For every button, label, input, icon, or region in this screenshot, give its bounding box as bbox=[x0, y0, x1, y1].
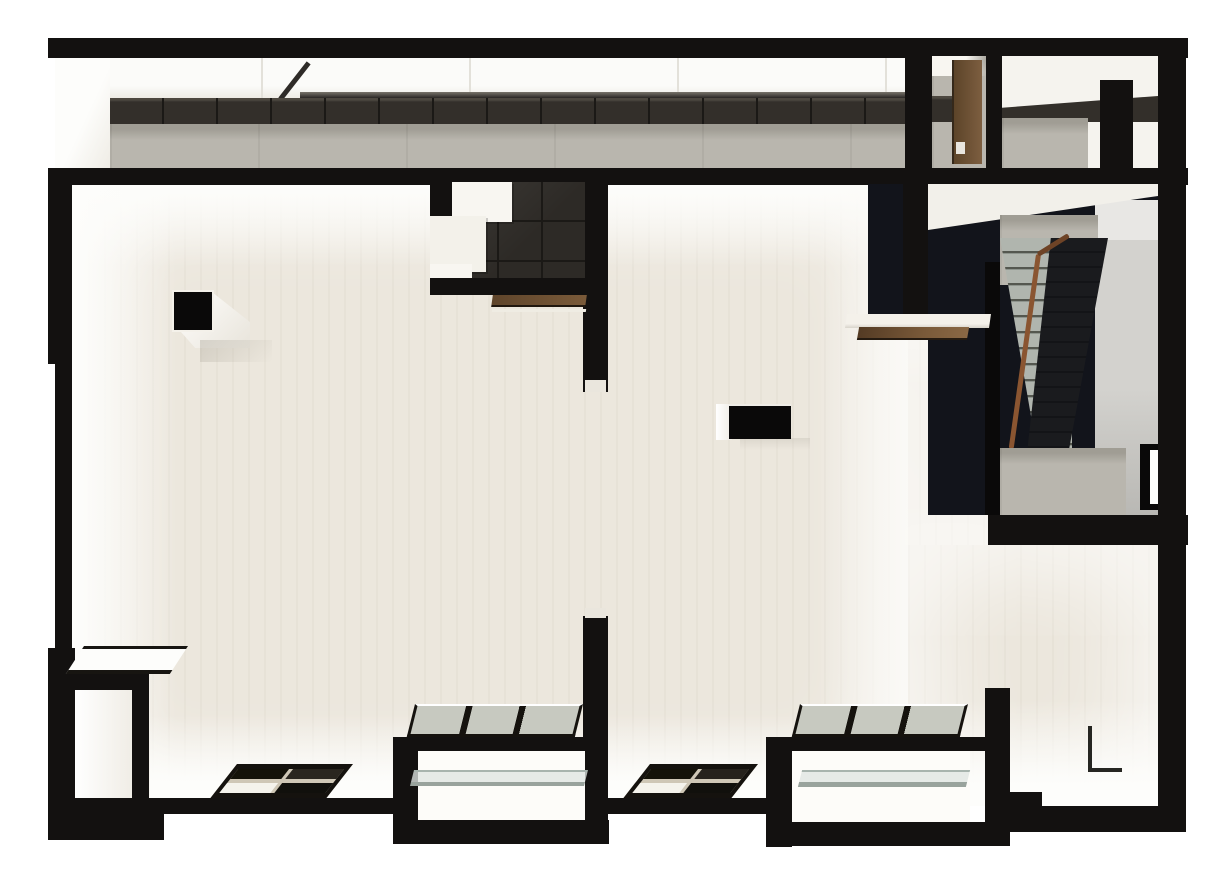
alcove-group bbox=[0, 0, 1212, 879]
entry-room-b-floor bbox=[1002, 118, 1088, 168]
alcove-inner-wall bbox=[132, 674, 149, 816]
stair-door-leaf-wood bbox=[857, 327, 969, 340]
stair-gray-wall bbox=[1095, 200, 1158, 515]
wall-face-bottom bbox=[150, 715, 908, 805]
floor-track-line-vert bbox=[1088, 726, 1092, 772]
entry-room-a-floor bbox=[932, 56, 986, 168]
balcony1-bottom-wall bbox=[393, 820, 609, 844]
balcony2-left-wall bbox=[766, 737, 792, 847]
wall-face-left bbox=[72, 185, 177, 805]
stair-upper-landing bbox=[1000, 215, 1098, 285]
balcony1-floor bbox=[418, 751, 585, 820]
stair-window-slot bbox=[1150, 450, 1166, 504]
entry-rooms-group bbox=[0, 0, 1212, 879]
bottom-wall-left bbox=[160, 798, 402, 814]
window-pane bbox=[219, 783, 278, 793]
stair-door-wall-cap bbox=[845, 314, 991, 328]
entry-room-b bbox=[1002, 56, 1158, 168]
vestibule-corner-wall bbox=[430, 168, 457, 218]
entry-room-a-tiles bbox=[932, 96, 952, 122]
vestibule-step-2 bbox=[430, 216, 486, 272]
window-pane bbox=[274, 783, 333, 793]
vestibule-bottom-wall bbox=[430, 278, 608, 295]
stair-lower-landing bbox=[1000, 448, 1126, 515]
north-main-wall bbox=[48, 168, 1188, 185]
floor-right-lower bbox=[908, 545, 1158, 806]
entry-room-b-inner-wall bbox=[1100, 80, 1133, 168]
balcony1-left-wall bbox=[393, 737, 418, 844]
stair-flight-dark bbox=[1020, 238, 1108, 453]
gallery-skylight-strip bbox=[55, 58, 985, 98]
vestibule-floor-tiles bbox=[455, 182, 585, 294]
balcony2-step-wall bbox=[1010, 792, 1042, 818]
window-pane bbox=[694, 769, 749, 779]
window-pane bbox=[230, 769, 289, 779]
balcony2-wall-band bbox=[770, 737, 992, 751]
alcove-bottom-wall bbox=[48, 798, 164, 840]
main-floor-group bbox=[0, 0, 1212, 879]
gallery-top-wall bbox=[48, 38, 1188, 58]
bottom-wall-mid bbox=[605, 798, 791, 814]
stair-handrail-top bbox=[1037, 233, 1070, 256]
left-wall-lower bbox=[55, 364, 72, 654]
floor-plan-render bbox=[0, 0, 1212, 879]
floor-right-mid bbox=[903, 318, 990, 545]
alcove-bench-table bbox=[66, 646, 188, 674]
entry-room-a-ceiling bbox=[932, 56, 986, 76]
balcony2-glazing-3pane bbox=[792, 704, 968, 737]
entry-divider-b bbox=[986, 38, 1002, 184]
alcove-interior-face bbox=[75, 690, 132, 810]
stair-entry-wall bbox=[903, 184, 928, 318]
stair-hall-void bbox=[928, 184, 1158, 515]
stair-flight-concrete bbox=[1000, 238, 1072, 453]
balcony1-glazing-3pane bbox=[407, 704, 583, 737]
tile-wall-top-edge bbox=[300, 92, 985, 98]
vestibule-door-threshold bbox=[492, 309, 586, 312]
wall-face-right bbox=[818, 185, 908, 805]
column-square-shadow bbox=[200, 340, 272, 362]
skylight-corner-seam bbox=[278, 61, 310, 100]
window-pane bbox=[683, 783, 738, 793]
wall-face-bottom-right bbox=[908, 700, 1158, 806]
window-grid-mid bbox=[623, 764, 758, 798]
walls-group bbox=[0, 0, 1212, 879]
column-square bbox=[172, 290, 214, 332]
entry-door-a-wood bbox=[952, 60, 982, 164]
vestibule-group bbox=[0, 0, 1212, 879]
stair-doorway-dark bbox=[868, 184, 903, 318]
stair-window-frame bbox=[1140, 444, 1174, 510]
alcove-left-wall bbox=[48, 648, 75, 840]
window-pane bbox=[643, 769, 698, 779]
balcony2-floor bbox=[792, 751, 970, 822]
column-rect bbox=[729, 404, 791, 439]
mid-wall-lower-cap bbox=[585, 608, 606, 618]
alcove-top-wall bbox=[60, 674, 148, 690]
mid-wall-upper-cap bbox=[585, 380, 606, 392]
balcony2-bottom-wall bbox=[766, 822, 988, 846]
vestibule-step-3 bbox=[430, 264, 472, 292]
vestibule-step-1 bbox=[452, 182, 512, 222]
stair-hall-group bbox=[0, 0, 1212, 879]
balcony2-glass-guardrail bbox=[798, 770, 970, 787]
floor-track-line-horiz bbox=[1088, 768, 1122, 772]
columns-group bbox=[0, 0, 1212, 879]
entry-room-b-tiles bbox=[1002, 96, 1158, 122]
gallery-left-wall-face bbox=[55, 58, 110, 168]
right-wall bbox=[1158, 38, 1186, 832]
column-rect-face bbox=[716, 404, 732, 440]
mid-wall-lower bbox=[583, 616, 608, 844]
stair-bottom-wall bbox=[988, 515, 1188, 545]
column-rect-shadow bbox=[740, 438, 810, 450]
gallery-concrete-walkway bbox=[110, 124, 985, 168]
wall-face-top bbox=[72, 185, 908, 267]
floor-main bbox=[72, 185, 908, 805]
entry-door-a-handle bbox=[956, 142, 965, 154]
window-grid-left bbox=[210, 764, 353, 798]
stair-left-wall bbox=[985, 262, 1000, 515]
stair-ceiling-slab bbox=[928, 184, 1158, 230]
balcony1-glass-guardrail bbox=[410, 770, 588, 786]
window-pane bbox=[632, 783, 687, 793]
stair-handrail bbox=[1009, 254, 1041, 449]
vestibule-door-wood bbox=[491, 295, 587, 307]
balcony1-wall-band bbox=[393, 737, 585, 751]
entry-divider-a bbox=[905, 38, 932, 184]
gallery-tile-wall bbox=[110, 98, 985, 124]
left-wall-upper bbox=[48, 168, 72, 364]
window-pane bbox=[285, 769, 344, 779]
south-group bbox=[0, 0, 1212, 879]
north-gallery-group bbox=[0, 0, 1212, 879]
balcony2-right-wall bbox=[985, 688, 1010, 846]
column-square-faces bbox=[176, 294, 250, 348]
bottom-wall-right bbox=[985, 806, 1186, 832]
mid-wall-upper bbox=[583, 168, 608, 392]
